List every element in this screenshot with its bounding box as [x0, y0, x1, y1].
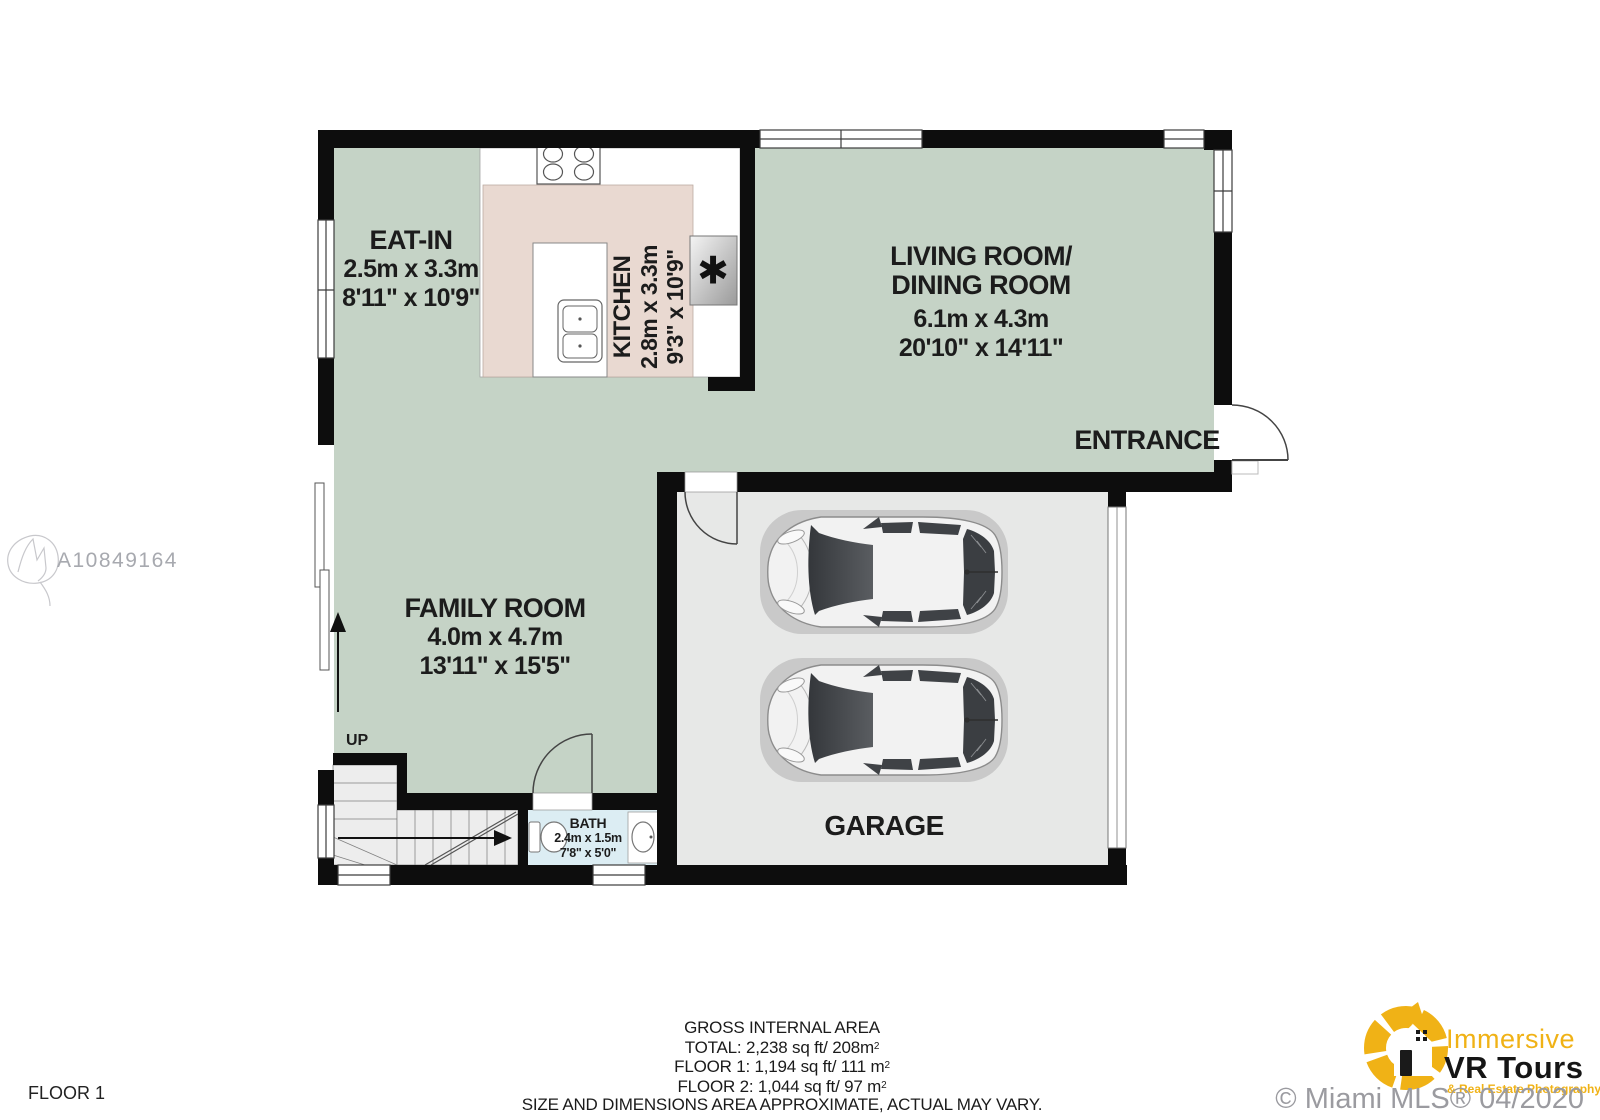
car-icon-2 [760, 658, 1008, 782]
room-name: FAMILY ROOM [405, 594, 586, 623]
floor-plan-page: EAT-IN 2.5m x 3.3m 8'11" x 10'9" KITCHEN… [0, 0, 1600, 1120]
copyright-watermark: © Miami MLS® 04/2020 [1275, 1083, 1584, 1116]
area-summary: GROSS INTERNAL AREA TOTAL: 2,238 sq ft/ … [522, 1019, 1042, 1115]
area-total: TOTAL: 2,238 sq ft/ 208m2 [522, 1038, 1042, 1058]
room-dim-metric: 2.4m x 1.5m [554, 831, 622, 846]
up-label: UP [346, 733, 368, 749]
room-dim-metric: 2.8m x 3.3m [636, 245, 662, 369]
floor-plan-drawing [0, 0, 1600, 1120]
garage-label: GARAGE [824, 811, 943, 840]
room-name: BATH [554, 816, 622, 831]
stove-icon [537, 142, 600, 184]
area-floor2: FLOOR 2: 1,044 sq ft/ 97 m2 [522, 1077, 1042, 1097]
room-dim-metric: 6.1m x 4.3m [890, 305, 1072, 334]
room-dim-imperial: 8'11" x 10'9" [342, 284, 480, 313]
bath-label: BATH 2.4m x 1.5m 7'8" x 5'0" [554, 816, 622, 861]
entrance-door [1232, 405, 1288, 474]
bath-sink-icon [632, 822, 654, 852]
logo-brand-main: VR Tours [1444, 1050, 1584, 1086]
fridge-asterisk: ✱ [697, 249, 729, 294]
area-heading: GROSS INTERNAL AREA [522, 1019, 1042, 1038]
kitchen-label: KITCHEN 2.8m x 3.3m 9'3" x 10'9" [610, 245, 688, 369]
room-dim-metric: 2.5m x 3.3m [342, 255, 480, 284]
room-name: LIVING ROOM/ [890, 242, 1072, 271]
mls-sketch-watermark [8, 535, 59, 606]
area-floor1: FLOOR 1: 1,194 sq ft/ 111 m2 [522, 1057, 1042, 1077]
vr-tours-logo-icon [1375, 1002, 1437, 1079]
eat-in-label: EAT-IN 2.5m x 3.3m 8'11" x 10'9" [342, 226, 480, 313]
mls-number-watermark: A10849164 [57, 549, 178, 573]
room-dim-imperial: 13'11" x 15'5" [405, 652, 586, 681]
room-dim-imperial: 9'3" x 10'9" [662, 245, 688, 369]
garage-door [1108, 507, 1126, 848]
sink-icon [558, 300, 602, 362]
area-disclaimer: SIZE AND DIMENSIONS AREA APPROXIMATE, AC… [522, 1096, 1042, 1115]
car-icon-1 [760, 510, 1008, 634]
floor-tag: FLOOR 1 [28, 1083, 105, 1104]
entrance-label: ENTRANCE [1074, 426, 1219, 455]
room-dim-imperial: 20'10" x 14'11" [890, 334, 1072, 363]
family-room-label: FAMILY ROOM 4.0m x 4.7m 13'11" x 15'5" [405, 594, 586, 681]
room-name: EAT-IN [342, 226, 480, 255]
room-dim-imperial: 7'8" x 5'0" [554, 846, 622, 861]
room-dim-metric: 4.0m x 4.7m [405, 623, 586, 652]
living-dining-label: LIVING ROOM/ DINING ROOM 6.1m x 4.3m 20'… [890, 242, 1072, 363]
room-name: KITCHEN [610, 245, 636, 369]
room-name: DINING ROOM [890, 271, 1072, 300]
